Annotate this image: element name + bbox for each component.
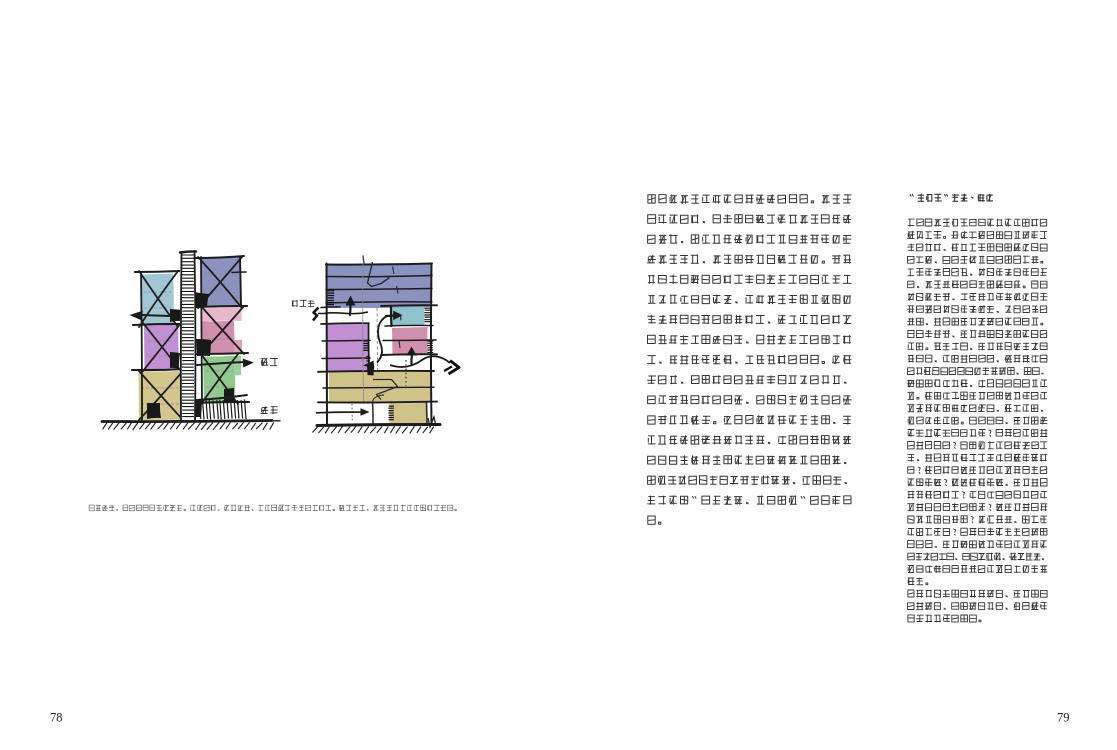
svg-text:79: 79 (1057, 711, 1070, 725)
svg-text:78: 78 (50, 711, 63, 725)
